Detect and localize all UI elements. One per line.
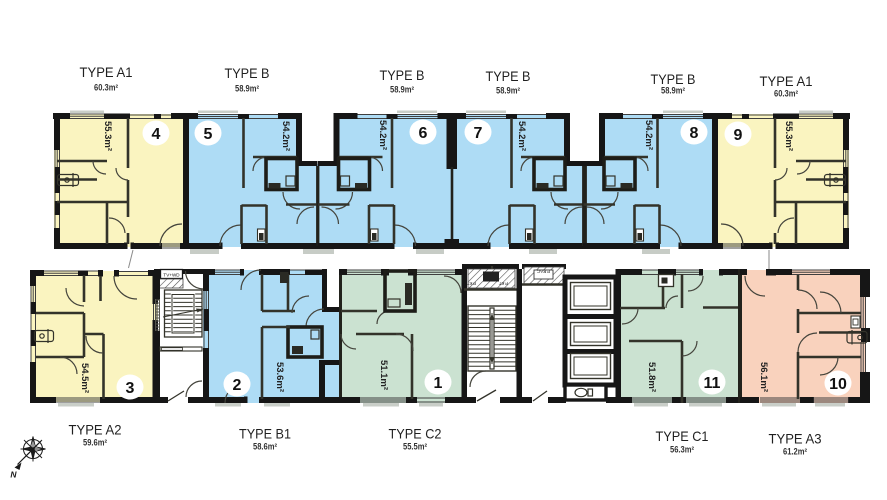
svg-text:TV+WD: TV+WD [163, 273, 180, 278]
svg-text:6: 6 [419, 125, 428, 142]
svg-text:TYPE C1: TYPE C1 [656, 428, 709, 444]
svg-text:51.8m²: 51.8m² [646, 362, 657, 392]
svg-text:56.3m²: 56.3m² [670, 445, 694, 455]
svg-text:TYPE C2: TYPE C2 [389, 426, 442, 442]
svg-text:TYPE A2: TYPE A2 [69, 422, 122, 438]
svg-text:5: 5 [204, 126, 213, 143]
svg-text:2: 2 [233, 377, 242, 394]
svg-text:P.KT: P.KT [466, 281, 476, 286]
svg-text:TYPE A3: TYPE A3 [769, 431, 822, 447]
svg-text:8: 8 [690, 125, 699, 142]
svg-text:TYPE B: TYPE B [225, 65, 270, 81]
svg-text:10: 10 [829, 376, 847, 393]
svg-text:N: N [10, 470, 17, 480]
svg-text:P.RAC: P.RAC [537, 269, 550, 274]
svg-text:9: 9 [734, 127, 743, 144]
svg-text:58.9m²: 58.9m² [235, 84, 259, 94]
svg-text:61.2m²: 61.2m² [783, 447, 807, 457]
svg-text:58.9m²: 58.9m² [661, 86, 685, 96]
svg-text:1: 1 [434, 375, 443, 392]
svg-text:TYPE A1: TYPE A1 [760, 73, 813, 89]
svg-text:60.3m²: 60.3m² [94, 83, 118, 93]
svg-text:TYPE B: TYPE B [486, 68, 531, 84]
svg-text:58.6m²: 58.6m² [253, 442, 277, 452]
svg-text:58.9m²: 58.9m² [496, 86, 520, 96]
svg-text:55.3m²: 55.3m² [783, 121, 794, 151]
svg-text:TYPE B1: TYPE B1 [239, 426, 291, 442]
svg-text:TYPE B: TYPE B [380, 67, 425, 83]
svg-text:4: 4 [152, 126, 161, 143]
svg-text:54.2m²: 54.2m² [643, 120, 654, 150]
svg-text:11: 11 [704, 375, 721, 392]
svg-text:55.5m²: 55.5m² [403, 442, 427, 452]
svg-text:51.1m²: 51.1m² [378, 360, 389, 390]
svg-text:3: 3 [126, 380, 135, 397]
svg-text:TYPE A1: TYPE A1 [80, 64, 133, 80]
svg-text:59.6m²: 59.6m² [83, 438, 107, 448]
svg-text:60.3m²: 60.3m² [774, 89, 798, 99]
svg-text:58.9m²: 58.9m² [390, 85, 414, 95]
svg-text:7: 7 [474, 125, 483, 142]
svg-text:54.5m²: 54.5m² [79, 363, 90, 393]
svg-text:56.1m²: 56.1m² [758, 362, 769, 392]
svg-text:54.2m²: 54.2m² [280, 121, 291, 151]
svg-text:55.3m²: 55.3m² [102, 121, 113, 151]
svg-text:54.2m²: 54.2m² [516, 121, 527, 151]
svg-text:53.6m²: 53.6m² [274, 362, 285, 392]
svg-text:P.KT: P.KT [498, 281, 508, 286]
svg-text:54.2m²: 54.2m² [377, 120, 388, 150]
